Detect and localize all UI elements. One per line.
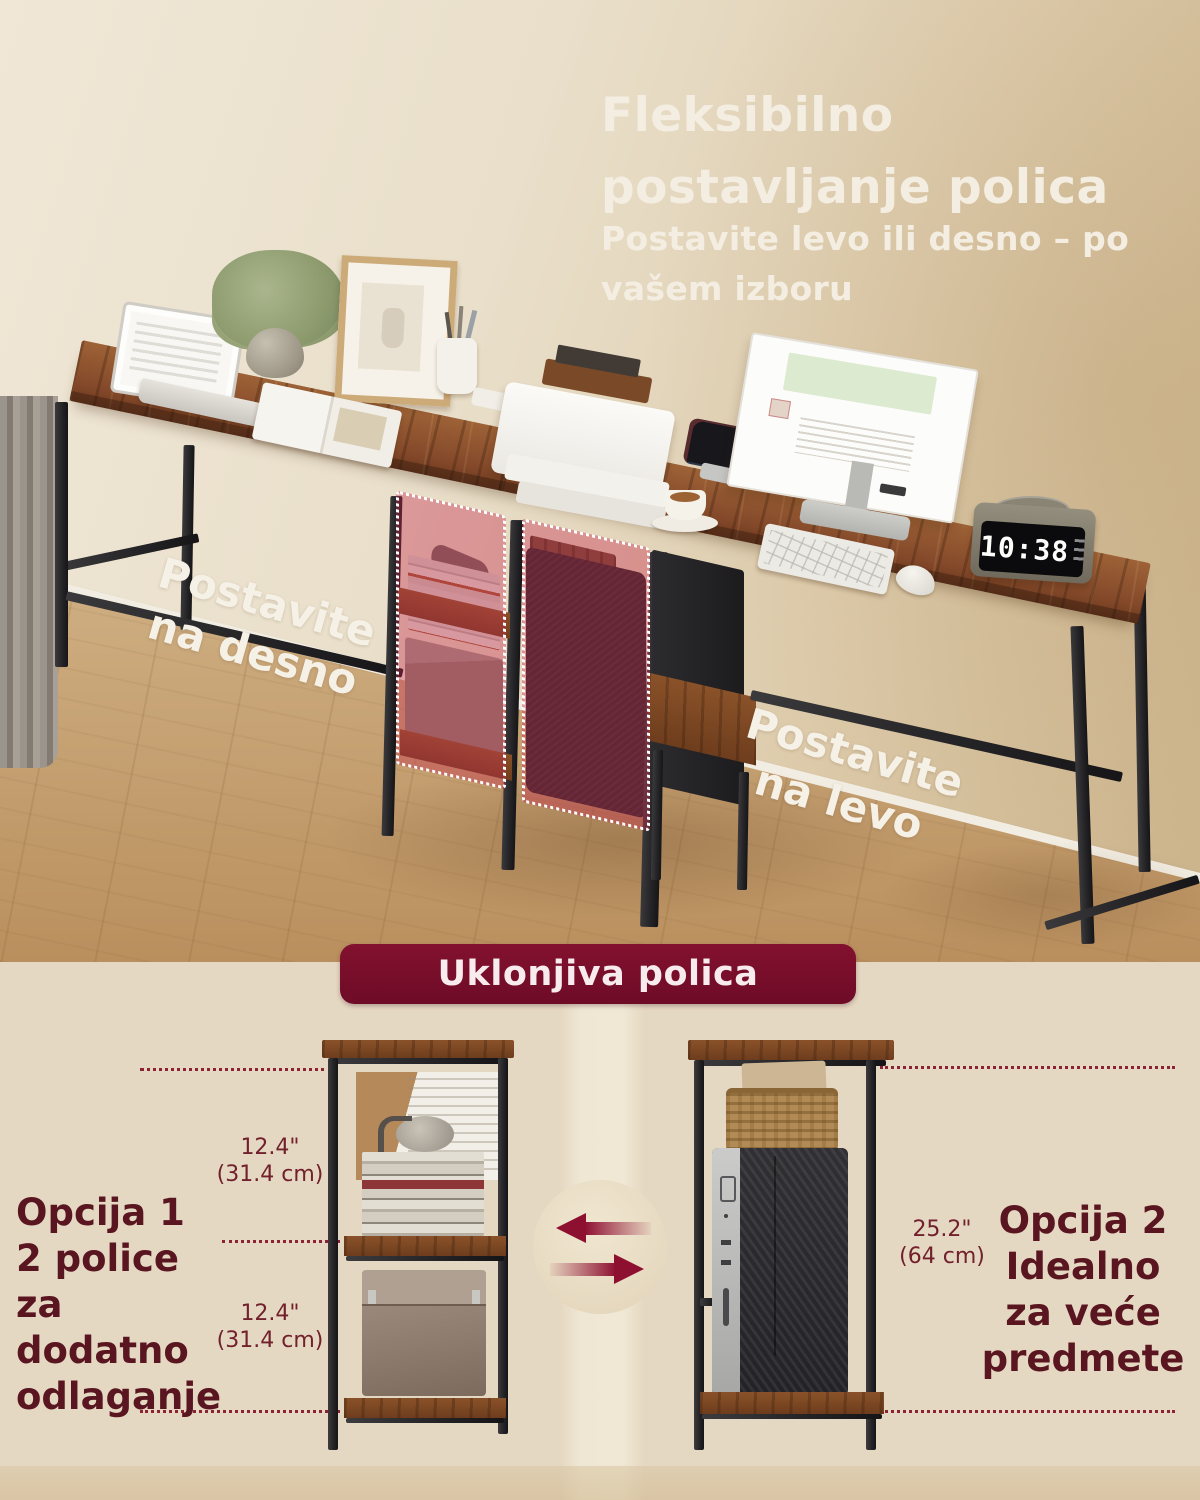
dim-line-right-bottom — [880, 1410, 1175, 1413]
option2-bottom-rail — [702, 1414, 882, 1419]
section-banner: Uklonjiva polica — [340, 944, 856, 1004]
box-lid — [362, 1270, 486, 1306]
dim-lower-cm: (31.4 cm) — [216, 1327, 324, 1354]
option1-storage-box — [362, 1270, 486, 1396]
option2-wicker-basket — [726, 1088, 838, 1155]
bottom-floor-strip — [0, 1466, 1200, 1500]
option1-text: Opcija 1 2 police za dodatno odlaganje — [16, 1190, 226, 1420]
option1-top-board — [322, 1040, 514, 1058]
option1-line1: 2 police za — [16, 1236, 226, 1328]
dim-line-upper-top — [140, 1068, 332, 1071]
dotted-highlight-right — [522, 518, 650, 832]
curtain — [0, 396, 58, 768]
option1-mid-shelf — [344, 1236, 506, 1256]
option2-top-board — [688, 1040, 894, 1060]
dim-upper-label: 12.4" (31.4 cm) — [216, 1134, 324, 1188]
option1-line3: odlaganje — [16, 1374, 226, 1420]
photo-frame-vase-motif — [381, 307, 405, 348]
swap-arrow-left-tail — [585, 1222, 651, 1235]
hero-subtitle-line2: vašem izboru — [601, 264, 1191, 314]
pc-led-dot — [724, 1214, 728, 1218]
pc-usb-port-2 — [721, 1260, 731, 1265]
alarm-clock-display: 10:38 — [978, 520, 1085, 577]
product-image: 10:38 Fleksibilno postavljanje polica Po… — [0, 0, 1200, 1500]
pc-panel-seam — [774, 1156, 776, 1356]
option1-book-stack — [362, 1152, 484, 1236]
dim-upper-cm: (31.4 cm) — [216, 1161, 324, 1188]
clock-side-marks — [1073, 539, 1084, 566]
desk-front-left-leg — [55, 402, 68, 667]
hero-subtitle: Postavite levo ili desno – po vašem izbo… — [601, 214, 1191, 314]
pc-power-button — [720, 1176, 736, 1202]
option2-pc-tower — [712, 1148, 848, 1396]
option1-bottom-rail — [346, 1418, 504, 1423]
dotted-highlight-left — [396, 490, 506, 789]
hero-photo: 10:38 Fleksibilno postavljanje polica Po… — [0, 0, 1200, 962]
box-clasp-left — [368, 1290, 376, 1304]
monitor-thumbnail — [768, 398, 791, 419]
option1-mid-rail — [346, 1256, 504, 1261]
option2-bottom-shelf — [700, 1392, 884, 1414]
red-book-spine — [362, 1180, 484, 1189]
option2-line3: predmete — [978, 1336, 1188, 1382]
option2-line2: za veće — [978, 1290, 1188, 1336]
swap-arrow-left-head — [556, 1213, 586, 1243]
option2-line1: Idealno — [978, 1244, 1188, 1290]
dim-line-upper-bottom — [222, 1240, 340, 1243]
clock-time: 10:38 — [979, 529, 1070, 568]
option1-bottom-shelf — [344, 1398, 506, 1418]
option1-headphone-band — [378, 1116, 412, 1153]
coffee-surface — [670, 492, 700, 502]
swap-circle — [533, 1180, 667, 1314]
option2-heading: Opcija 2 — [978, 1198, 1188, 1244]
dim-upper-inches: 12.4" — [216, 1134, 324, 1161]
option2-text: Opcija 2 Idealno za veće predmete — [978, 1198, 1188, 1382]
plant-vase — [246, 328, 304, 378]
option1-top-rail — [330, 1058, 508, 1064]
swap-arrow-right-head — [614, 1254, 644, 1284]
hero-subtitle-line1: Postavite levo ili desno – po — [601, 214, 1191, 264]
dim-lower-inches: 12.4" — [216, 1300, 324, 1327]
hero-title-line1: Fleksibilno — [601, 80, 1191, 152]
monitor-footer-button — [879, 483, 906, 496]
monitor-header-band — [783, 352, 937, 414]
hero-title: Fleksibilno postavljanje polica — [601, 80, 1191, 224]
option1-heading: Opcija 1 — [16, 1190, 226, 1236]
pc-usb-port-1 — [721, 1240, 731, 1245]
box-clasp-right — [472, 1290, 480, 1304]
option1-line2: dodatno — [16, 1328, 226, 1374]
pc-vent-slot — [723, 1288, 729, 1326]
swap-arrow-right-tail — [550, 1263, 616, 1276]
option1-left-leg — [328, 1058, 338, 1450]
dim-lower-label: 12.4" (31.4 cm) — [216, 1300, 324, 1354]
pen-holder-cup — [437, 338, 477, 394]
dim-line-right-top — [880, 1066, 1175, 1069]
